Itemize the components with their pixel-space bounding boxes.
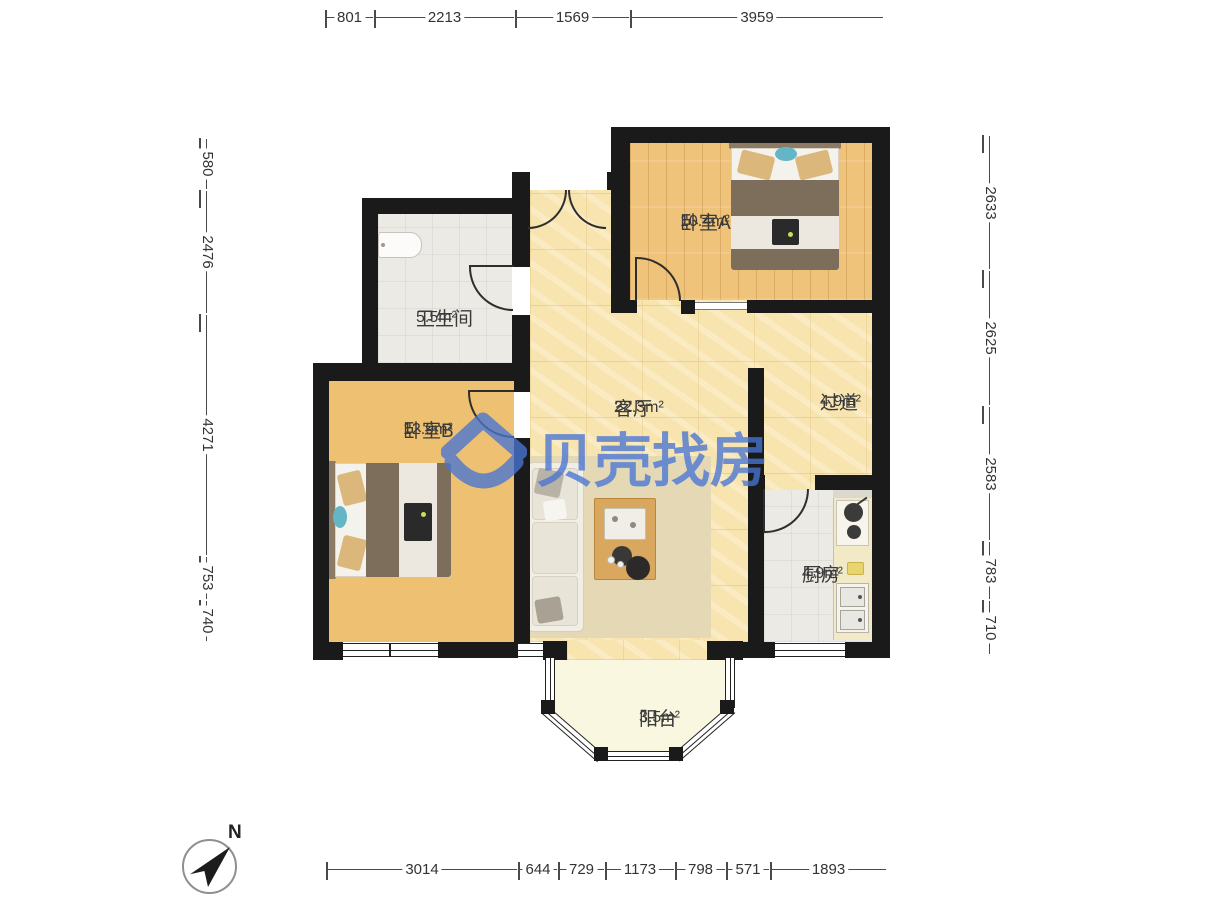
wall-segment: [872, 127, 890, 658]
dimension-segment: 2633: [982, 135, 997, 270]
dimension-segment: 644: [518, 862, 558, 877]
coffee-table-item: [612, 516, 618, 522]
balcony-passage-floor: [567, 640, 707, 660]
sofa-cushion: [532, 522, 578, 574]
wall-segment: [747, 300, 890, 313]
dimension-segment: 753: [199, 556, 214, 600]
dimension-segment: 783: [982, 541, 997, 600]
bathtub-faucet: [381, 243, 385, 247]
room-area: 4.9m²: [802, 564, 843, 584]
bedroom-a-tray-dot: [788, 232, 793, 237]
dimension-segment: 798: [675, 862, 726, 877]
dimension-segment: 4271: [199, 314, 214, 556]
wall-segment: [611, 300, 637, 313]
watermark-text: 贝壳找房: [536, 414, 766, 498]
wall-segment: [611, 127, 630, 313]
house-logo-icon: [441, 412, 527, 494]
window-mullion: [389, 643, 391, 657]
sofa-pillow: [534, 596, 564, 624]
room-area: 5.5m²: [416, 308, 457, 328]
balcony-corner-block: [541, 700, 555, 714]
dimension-segment: 1893: [770, 862, 887, 877]
bedroom-a-tray: [772, 219, 799, 245]
stove-burner: [847, 525, 861, 539]
sofa-pillow: [543, 499, 568, 522]
wall-segment: [845, 642, 890, 658]
dimension-segment: 801: [325, 10, 374, 25]
coffee-table-tray: [604, 508, 646, 540]
dimension-segment: 3959: [630, 10, 884, 25]
dimension-segment: 2583: [982, 406, 997, 541]
wall-segment: [514, 368, 530, 392]
wall-segment: [748, 368, 764, 658]
dimension-segment: 2625: [982, 270, 997, 406]
wall-segment: [815, 475, 890, 490]
coffee-table-cup: [607, 556, 615, 564]
window: [775, 643, 845, 657]
dimension-segment: 580: [199, 138, 214, 190]
bedroom-a-cushion: [775, 147, 797, 161]
dimension-segment: 729: [558, 862, 605, 877]
floor-plan-page: 卧室A 10.4m² 卫生间 5.5m² 卧室B 12.9m² 客厅 22.3m…: [0, 0, 1209, 903]
door-hinge-block: [681, 300, 695, 314]
wall-segment: [362, 198, 530, 214]
wall-segment: [438, 642, 518, 658]
wall-segment: [362, 198, 378, 381]
wall-segment: [611, 127, 890, 143]
dimension-segment: 3014: [326, 862, 518, 877]
dimension-segment: 1173: [605, 862, 675, 877]
room-area: 4.9m²: [820, 392, 861, 412]
room-area: 10.4m²: [680, 212, 730, 232]
window: [518, 643, 543, 657]
cutting-board: [847, 562, 864, 575]
balcony-corner-block: [720, 700, 734, 714]
sink-drain: [858, 618, 862, 622]
balcony-corner-block: [669, 747, 683, 761]
wall-segment: [313, 363, 329, 658]
coffee-table-cup: [617, 561, 624, 568]
bedroom-b-tray-dot: [421, 512, 426, 517]
dimension-segment: 710: [982, 600, 997, 655]
dimension-segment: 2213: [374, 10, 515, 25]
dimension-segment: 1569: [515, 10, 630, 25]
dimension-segment: 571: [726, 862, 770, 877]
sink-drain: [858, 595, 862, 599]
dimension-segment: 740: [199, 600, 214, 642]
compass-north-label: N: [228, 822, 242, 844]
wall-segment: [743, 642, 775, 658]
wall-segment: [313, 642, 343, 660]
coffee-table-item: [630, 522, 636, 528]
room-area: 3.5m²: [639, 708, 680, 728]
bedroom-b-tray: [404, 503, 432, 541]
balcony-window: [601, 751, 679, 761]
stove-burner: [844, 503, 863, 522]
dimension-segment: 2476: [199, 190, 214, 314]
coffee-table-bowl: [626, 556, 650, 580]
doorway-threshold: [695, 302, 747, 310]
wall-segment: [313, 363, 530, 381]
bedroom-b-cushion: [333, 506, 347, 528]
balcony-corner-block: [594, 747, 608, 761]
